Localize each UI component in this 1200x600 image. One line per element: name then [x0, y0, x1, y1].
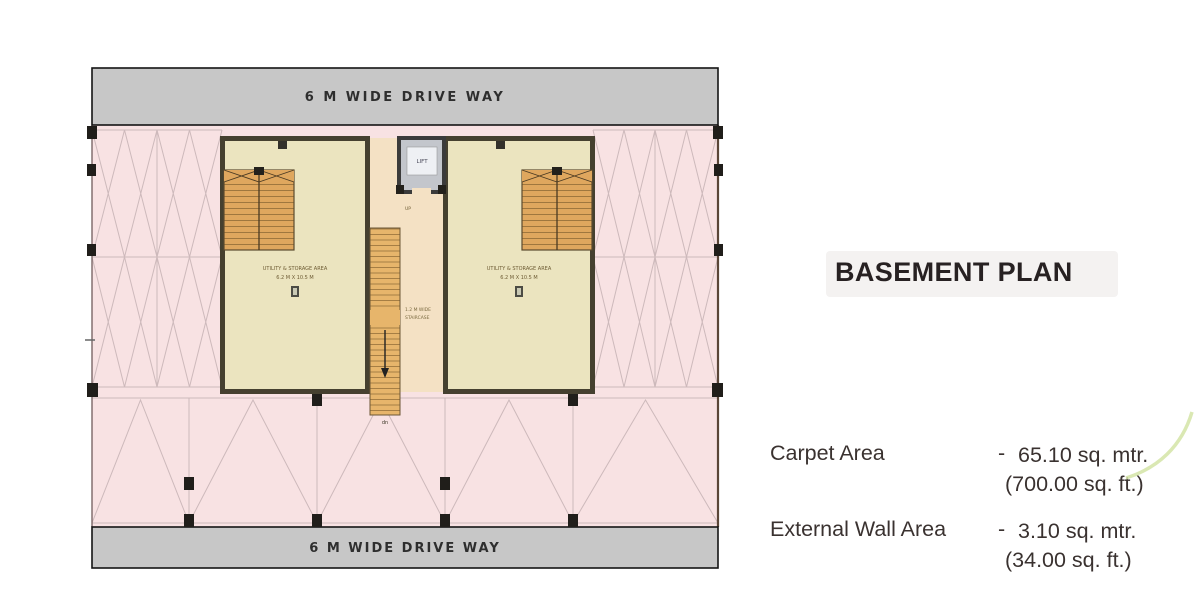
- external-wall-area-label: External Wall Area: [770, 517, 946, 542]
- stair-width-label-2: STAIRCASE: [405, 315, 430, 321]
- bottom-driveway-label: 6 M WIDE DRIVE WAY: [309, 541, 501, 556]
- top-driveway: 6 M WIDE DRIVE WAY: [92, 68, 718, 125]
- column-symbol-core: [293, 288, 297, 295]
- unit-right-staircase: [522, 167, 592, 250]
- lift: LIFT: [396, 138, 446, 194]
- decorative-swoosh: [1118, 408, 1200, 488]
- bottom-driveway: 6 M WIDE DRIVE WAY: [92, 527, 718, 568]
- stair-width-label-1: 1.2 M WIDE: [405, 307, 431, 313]
- unit-left-size: 6.2 M X 10.5 M: [276, 275, 314, 281]
- unit-right: UTILITY & STORAGE AREA 6.2 M X 10.5 M: [446, 139, 593, 392]
- stair-up-label: UP: [405, 206, 411, 212]
- carpet-area-label: Carpet Area: [770, 441, 885, 466]
- wall-pier: [278, 141, 287, 149]
- external-wall-area-metric: 3.10 sq. mtr.: [1018, 517, 1136, 546]
- plan-title-box: BASEMENT PLAN: [826, 251, 1118, 297]
- top-driveway-label: 6 M WIDE DRIVE WAY: [305, 90, 506, 105]
- lift-pier-right: [438, 185, 446, 194]
- stair-landing: [370, 310, 400, 325]
- wall-pier: [496, 141, 505, 149]
- unit-left-name: UTILITY & STORAGE AREA: [263, 266, 328, 272]
- plan-title: BASEMENT PLAN: [835, 257, 1118, 288]
- stair-down-label: dn: [382, 420, 388, 426]
- page: 6 M WIDE DRIVE WAY 6 M WIDE DRIVE WAY UT…: [0, 0, 1200, 600]
- lift-label: LIFT: [416, 159, 428, 165]
- external-wall-area-imperial: (34.00 sq. ft.): [1005, 546, 1136, 575]
- unit-right-size: 6.2 M X 10.5 M: [500, 275, 538, 281]
- unit-left-staircase: [224, 167, 294, 250]
- basement-floor-plan: 6 M WIDE DRIVE WAY 6 M WIDE DRIVE WAY UT…: [85, 58, 725, 573]
- column-symbol-core: [517, 288, 521, 295]
- carpet-area-separator: -: [998, 441, 1005, 466]
- lift-pier-left: [396, 185, 404, 194]
- unit-left: UTILITY & STORAGE AREA 6.2 M X 10.5 M: [223, 139, 368, 392]
- external-wall-area-separator: -: [998, 517, 1005, 542]
- unit-right-name: UTILITY & STORAGE AREA: [487, 266, 552, 272]
- lift-door-opening: [412, 188, 431, 194]
- external-wall-area-values: 3.10 sq. mtr. (34.00 sq. ft.): [1018, 517, 1136, 575]
